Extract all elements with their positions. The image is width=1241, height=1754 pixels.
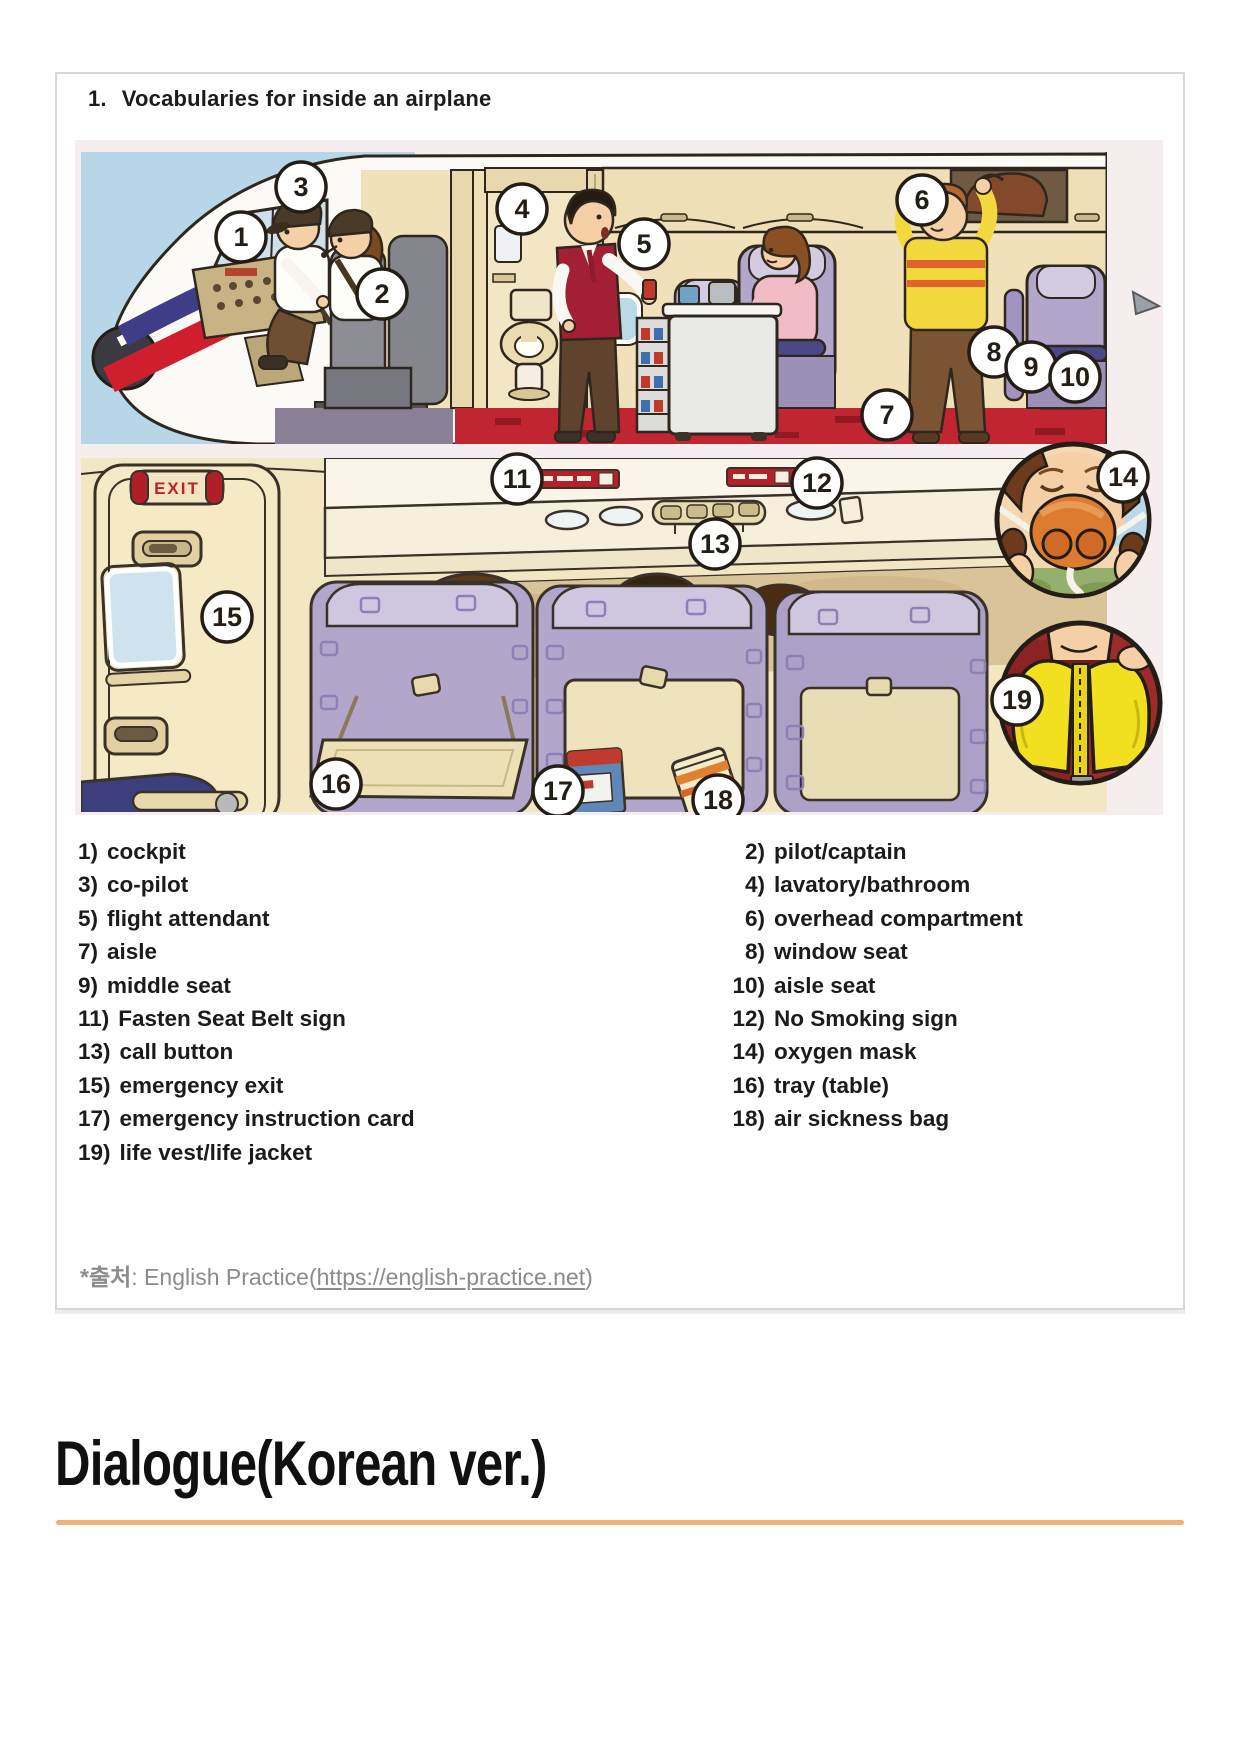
source-link[interactable]: https://english-practice.net [317, 1264, 585, 1290]
tray-latch [639, 666, 667, 689]
overhead-compartment [603, 168, 1107, 232]
svg-text:7: 7 [879, 400, 894, 430]
svg-text:9: 9 [1023, 352, 1038, 382]
label-badge-5: 5 [619, 219, 669, 269]
svg-text:11: 11 [503, 464, 532, 494]
svg-text:18: 18 [703, 785, 733, 815]
svg-text:15: 15 [212, 602, 242, 632]
source-citation: *출처: English Practice(https://english-pr… [80, 1258, 593, 1292]
svg-text:5: 5 [636, 229, 651, 259]
card-title-number: 1. [88, 86, 107, 111]
vocab-item: 7)aisle [78, 935, 415, 968]
cup [679, 286, 699, 304]
label-badge-14: 14 [1098, 452, 1148, 502]
fasten-seat-belt-sign [535, 470, 619, 488]
label-badge-18: 18 [693, 775, 743, 815]
reading-light [546, 511, 588, 529]
vocab-item: 13)call button [78, 1035, 415, 1068]
section-divider-rule [56, 1520, 1184, 1525]
svg-text:1: 1 [233, 222, 248, 252]
label-badge-4: 4 [497, 184, 547, 234]
source-label: *출처 [80, 1264, 131, 1290]
vocab-item: 16)tray (table) [719, 1069, 1023, 1102]
vocab-item: 3)co-pilot [78, 868, 415, 901]
label-badge-6: 6 [897, 175, 947, 225]
source-close: ) [585, 1264, 593, 1290]
label-badge-17: 17 [533, 766, 583, 815]
svg-text:2: 2 [374, 279, 389, 309]
svg-text:16: 16 [321, 769, 351, 799]
airplane-illustration: EXIT [75, 140, 1163, 815]
svg-text:19: 19 [1002, 685, 1032, 715]
label-badge-2: 2 [357, 269, 407, 319]
seat-back-right [775, 592, 987, 815]
vocab-item: 8)window seat [719, 935, 1023, 968]
cabin-cutaway-scene [81, 152, 1116, 444]
source-mid: : English Practice( [131, 1264, 316, 1290]
reading-light [600, 507, 642, 525]
svg-text:17: 17 [543, 776, 573, 806]
svg-text:14: 14 [1108, 462, 1138, 492]
cockpit-divider-wall [451, 170, 475, 408]
label-badge-12: 12 [792, 458, 842, 508]
vocab-item: 15)emergency exit [78, 1069, 415, 1102]
toilet-tank [511, 290, 551, 320]
vocab-item: 10)aisle seat [719, 969, 1023, 1002]
vocab-item: 11)Fasten Seat Belt sign [78, 1002, 415, 1035]
vocab-item: 12)No Smoking sign [719, 1002, 1023, 1035]
vocab-item: 9)middle seat [78, 969, 415, 1002]
label-badge-3: 3 [276, 162, 326, 212]
vocabulary-card: 1.Vocabularies for inside an airplane [55, 72, 1185, 1310]
vocabulary-list: 1)cockpit 3)co-pilot 5)flight attendant … [57, 835, 1183, 1175]
tray-closed [801, 688, 959, 800]
vocab-item: 6)overhead compartment [719, 902, 1023, 935]
label-badge-1: 1 [216, 212, 266, 262]
cabin-carpet [455, 408, 1107, 444]
vocab-column-left: 1)cockpit 3)co-pilot 5)flight attendant … [78, 835, 415, 1169]
svg-text:6: 6 [914, 185, 929, 215]
svg-text:3: 3 [293, 172, 308, 202]
page: { "card": { "title_number": "1.", "title… [0, 0, 1241, 1754]
vocab-column-right: 2)pilot/captain 4)lavatory/bathroom 6)ov… [719, 835, 1023, 1136]
label-badge-13: 13 [690, 519, 740, 569]
drink-can [643, 280, 656, 299]
label-badge-10: 10 [1050, 352, 1100, 402]
exit-sign: EXIT [131, 471, 223, 504]
section-heading: Dialogue(Korean ver.) [55, 1428, 547, 1500]
label-badge-7: 7 [862, 390, 912, 440]
vocab-item: 5)flight attendant [78, 902, 415, 935]
card-title-text: Vocabularies for inside an airplane [122, 86, 492, 111]
vocab-item: 2)pilot/captain [719, 835, 1023, 868]
coffee-pot [709, 282, 735, 304]
airplane-illustration-svg: EXIT [75, 140, 1163, 815]
card-title: 1.Vocabularies for inside an airplane [88, 86, 491, 112]
svg-text:8: 8 [986, 337, 1001, 367]
vocab-item: 4)lavatory/bathroom [719, 868, 1023, 901]
svg-text:4: 4 [514, 194, 529, 224]
emergency-exit-door: EXIT [95, 465, 279, 815]
vocab-item: 18)air sickness bag [719, 1102, 1023, 1135]
label-badge-15: 15 [202, 592, 252, 642]
label-badge-9: 9 [1006, 342, 1056, 392]
svg-text:13: 13 [700, 529, 730, 559]
svg-text:12: 12 [802, 468, 832, 498]
vocab-item: 1)cockpit [78, 835, 415, 868]
label-badge-11: 11 [492, 454, 542, 504]
label-badge-16: 16 [311, 759, 361, 809]
tray-latch [412, 674, 441, 696]
exit-sign-text: EXIT [154, 479, 200, 498]
svg-text:10: 10 [1060, 362, 1090, 392]
label-badge-19: 19 [992, 675, 1042, 725]
vocab-item: 19)life vest/life jacket [78, 1136, 415, 1169]
vocab-item: 17)emergency instruction card [78, 1102, 415, 1135]
vocab-item: 14)oxygen mask [719, 1035, 1023, 1068]
cockpit-floor [275, 408, 453, 444]
